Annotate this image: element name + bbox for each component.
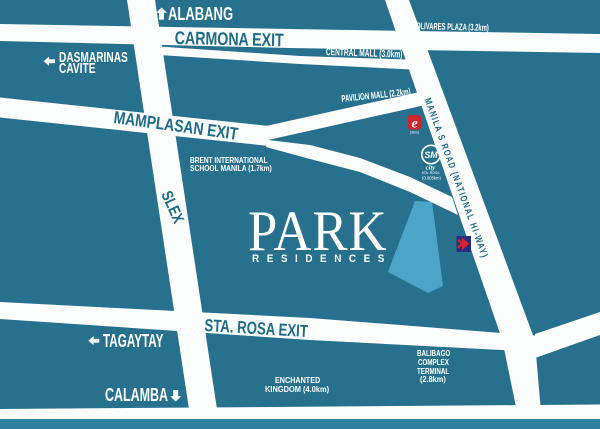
svg-text:(3km): (3km): [410, 131, 419, 135]
svg-text:STA. ROSA: STA. ROSA: [422, 171, 441, 175]
svg-text:e: e: [411, 116, 417, 131]
svg-text:SM: SM: [424, 150, 438, 160]
svg-text:(0.005km): (0.005km): [422, 175, 441, 180]
